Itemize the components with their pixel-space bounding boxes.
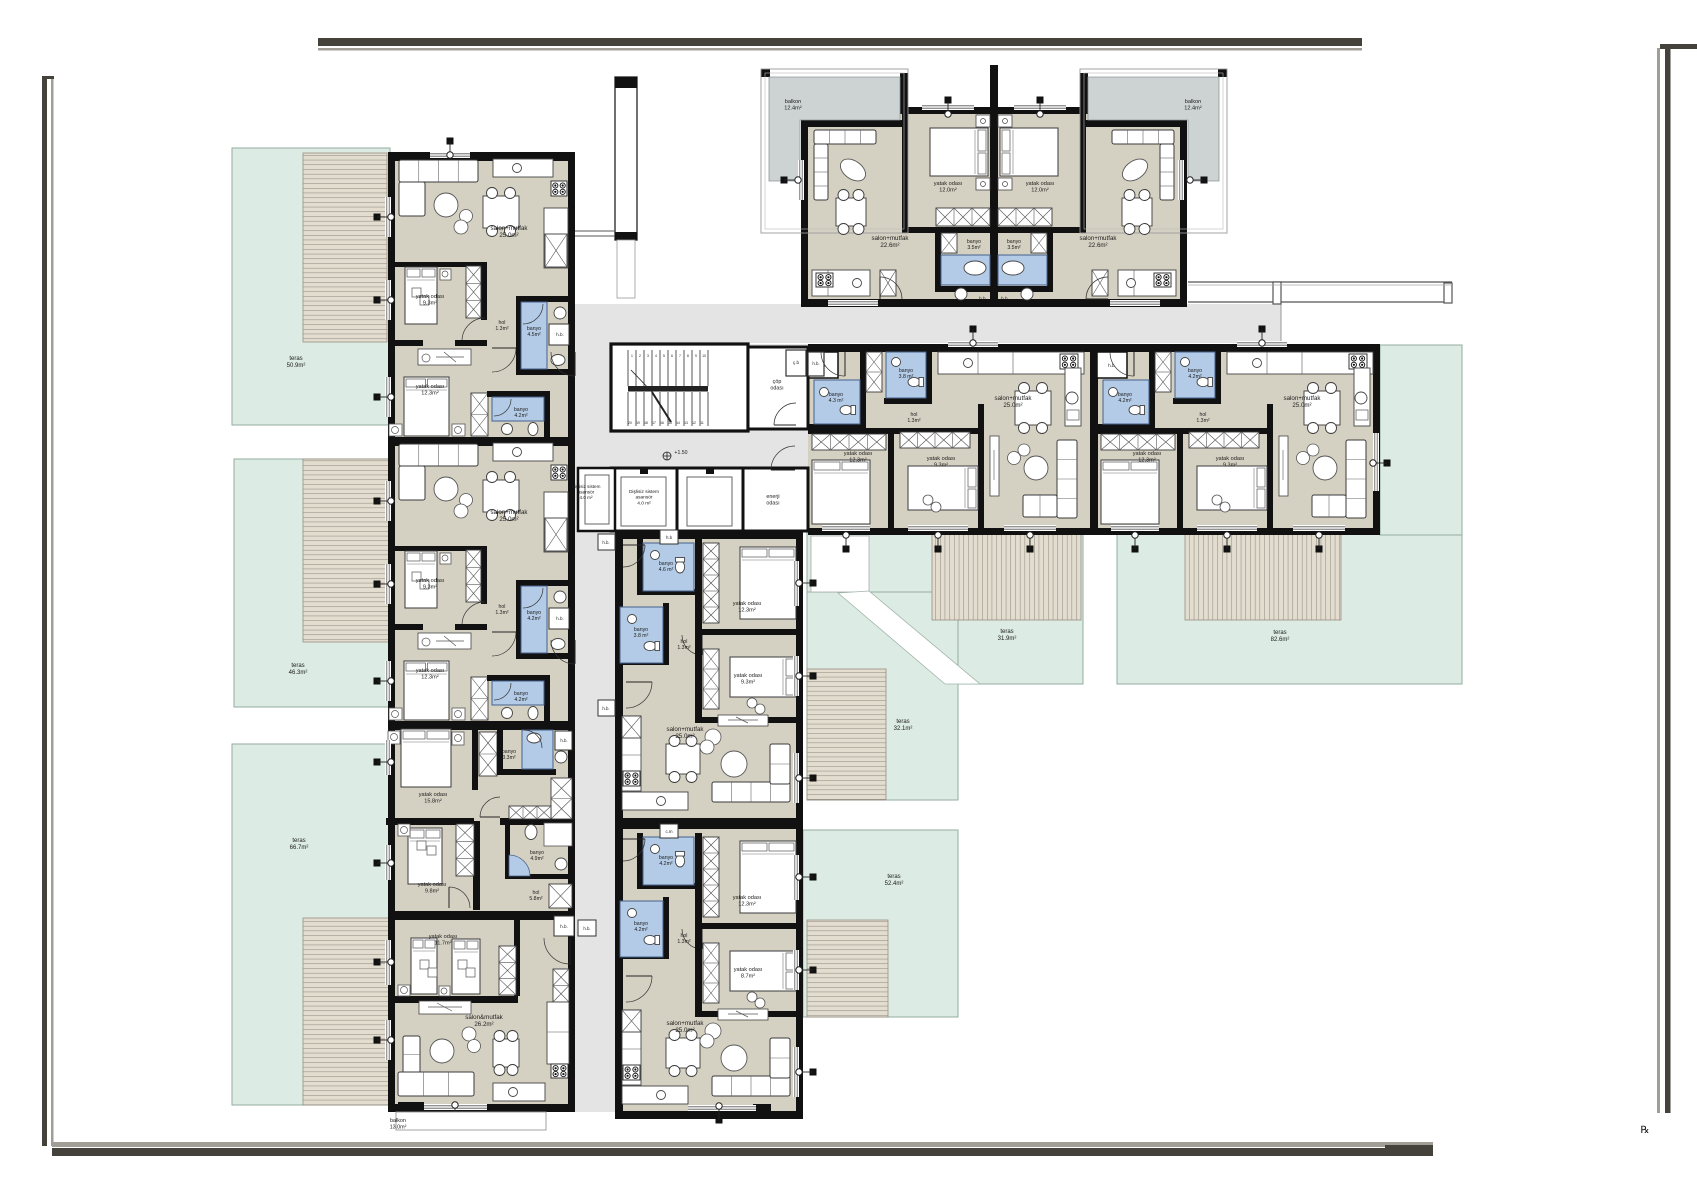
svg-text:18: 18	[644, 421, 648, 425]
svg-text:teras46.3m²: teras46.3m²	[289, 663, 308, 676]
svg-text:banyo4.3 m²: banyo4.3 m²	[829, 392, 844, 404]
svg-text:h.b.: h.b.	[812, 361, 819, 366]
svg-text:1: 1	[631, 354, 633, 358]
svg-text:12: 12	[692, 421, 696, 425]
svg-text:banyo4.6 m²: banyo4.6 m²	[659, 561, 674, 573]
svg-text:h.b.: h.b.	[556, 332, 564, 337]
svg-text:teras31.9m²: teras31.9m²	[998, 629, 1017, 642]
svg-text:h.b.: h.b.	[979, 296, 987, 301]
svg-text:teras52.4m²: teras52.4m²	[885, 874, 904, 887]
svg-text:h.b.: h.b.	[560, 924, 568, 929]
svg-text:h.b.: h.b.	[583, 926, 590, 931]
svg-text:h.b.: h.b.	[602, 540, 609, 545]
svg-text:2: 2	[639, 354, 641, 358]
svg-text:banyo4.2m²: banyo4.2m²	[527, 610, 541, 622]
svg-text:balkon12.4m²: balkon12.4m²	[784, 99, 802, 112]
svg-text:c.m: c.m	[665, 829, 672, 834]
svg-text:banyo4.9m²: banyo4.9m²	[530, 850, 544, 862]
svg-text:teras66.7m²: teras66.7m²	[290, 838, 309, 851]
svg-text:17: 17	[652, 421, 656, 425]
svg-text:10: 10	[702, 354, 706, 358]
svg-text:+1.50: +1.50	[674, 450, 687, 456]
svg-text:banyo4.2m²: banyo4.2m²	[659, 855, 673, 867]
svg-text:balkon12.4m²: balkon12.4m²	[1184, 99, 1202, 112]
svg-text:8: 8	[687, 354, 689, 358]
svg-text:teras32.1m²: teras32.1m²	[894, 719, 913, 732]
svg-text:banyo4.2m²: banyo4.2m²	[634, 921, 648, 933]
svg-text:banyo3.8 m²: banyo3.8 m²	[899, 368, 914, 380]
svg-text:banyo4.2m²: banyo4.2m²	[1188, 368, 1202, 380]
svg-text:℞: ℞	[1641, 1125, 1650, 1136]
svg-text:banyo3.5m²: banyo3.5m²	[1007, 239, 1021, 251]
svg-text:enerjiodası: enerjiodası	[766, 494, 779, 506]
svg-text:16: 16	[660, 421, 664, 425]
svg-text:11: 11	[700, 421, 704, 425]
svg-text:banyo3.8 m²: banyo3.8 m²	[634, 627, 649, 639]
svg-text:banyo4.2m²: banyo4.2m²	[514, 407, 528, 419]
svg-text:19: 19	[636, 421, 640, 425]
svg-text:20: 20	[628, 421, 632, 425]
svg-text:h.b.: h.b.	[1108, 363, 1116, 368]
svg-text:13: 13	[684, 421, 688, 425]
svg-text:4: 4	[655, 354, 657, 358]
svg-text:h.b.: h.b.	[560, 738, 567, 743]
svg-text:h.b.: h.b.	[1001, 296, 1009, 301]
svg-text:h.b.: h.b.	[602, 706, 609, 711]
svg-text:teras82.6m²: teras82.6m²	[1271, 630, 1290, 643]
svg-text:3: 3	[647, 354, 649, 358]
svg-text:banyo3.5m²: banyo3.5m²	[967, 239, 981, 251]
svg-text:banyo4.2m²: banyo4.2m²	[1118, 392, 1132, 404]
svg-text:ç.b: ç.b	[793, 360, 800, 365]
svg-text:7: 7	[679, 354, 681, 358]
svg-text:5: 5	[663, 354, 665, 358]
svg-text:9: 9	[695, 354, 697, 358]
svg-text:balkon13.0m²: balkon13.0m²	[390, 1118, 407, 1130]
svg-text:banyo3.3m²: banyo3.3m²	[502, 749, 516, 761]
svg-text:14: 14	[676, 421, 680, 425]
svg-text:h.b.: h.b.	[556, 616, 564, 621]
svg-text:banyo4.5m²: banyo4.5m²	[527, 326, 541, 338]
svg-text:6: 6	[671, 354, 673, 358]
svg-text:15: 15	[668, 421, 672, 425]
svg-text:h.b: h.b	[666, 535, 673, 540]
svg-text:teras50.9m²: teras50.9m²	[287, 356, 306, 369]
svg-text:banyo4.2m²: banyo4.2m²	[514, 691, 528, 703]
